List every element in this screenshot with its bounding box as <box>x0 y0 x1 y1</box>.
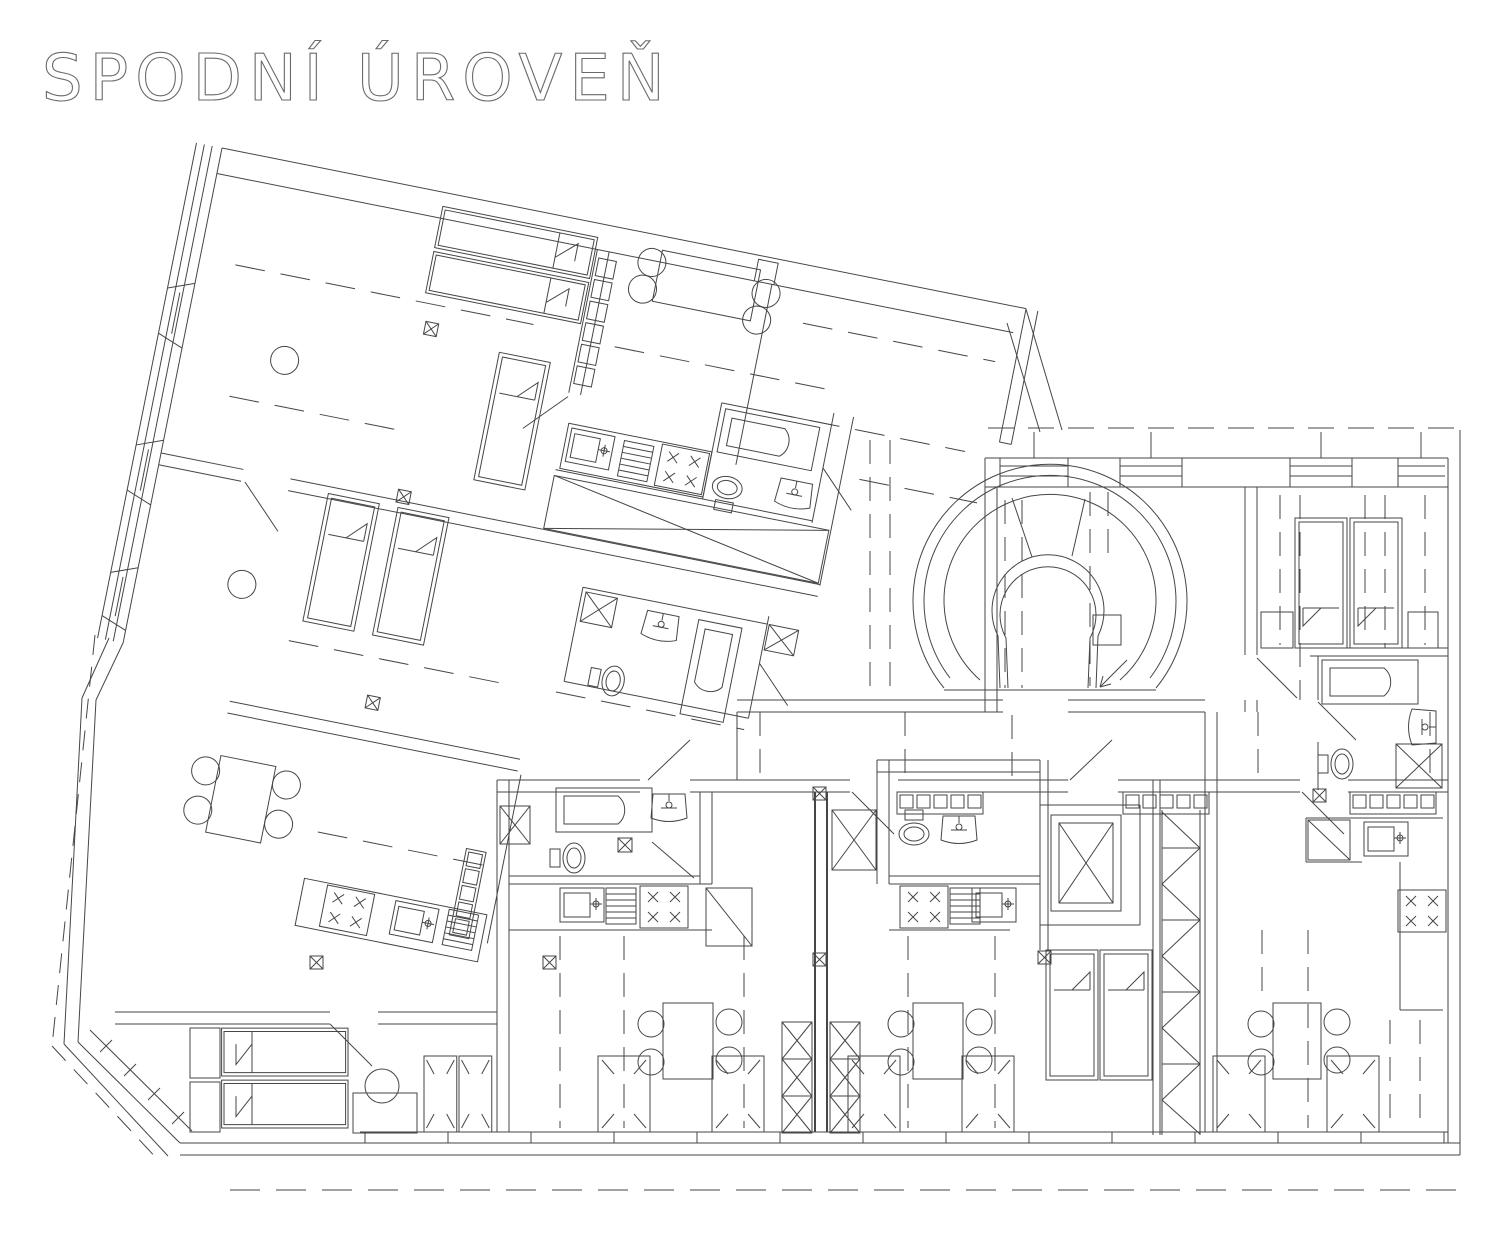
hatch-symbol <box>606 888 636 924</box>
tubh-symbol <box>556 788 652 832</box>
seat-symbol <box>962 1056 1014 1132</box>
bedv-symbol <box>1350 518 1402 648</box>
seat-symbol <box>712 1056 764 1132</box>
wc-symbol <box>708 474 744 514</box>
tubh-symbol <box>717 409 820 471</box>
basin-symbol <box>640 610 681 644</box>
stove-symbol <box>654 444 709 495</box>
bedv-symbol <box>373 507 449 645</box>
bedv-symbol <box>1046 950 1098 1080</box>
sink-symbol <box>972 888 1016 922</box>
stove-symbol <box>319 885 374 936</box>
bedh-symbol <box>222 1080 348 1128</box>
bedh-symbol <box>222 1028 348 1076</box>
hatch-symbol <box>617 441 653 482</box>
plan-drawing <box>50 143 1460 1190</box>
seat-symbol <box>848 1056 900 1132</box>
seat-symbol <box>1327 1056 1379 1132</box>
bedv-symbol <box>1295 518 1347 648</box>
plan-title: SPODNÍ ÚROVEŇ <box>42 40 672 116</box>
wc-symbol <box>1318 749 1353 779</box>
stove-symbol <box>1398 890 1446 932</box>
wc-symbol <box>550 843 585 873</box>
floorplan-svg: SPODNÍ ÚROVEŇ <box>0 0 1500 1245</box>
floorplan-page: SPODNÍ ÚROVEŇ <box>0 0 1500 1245</box>
stove-symbol <box>900 886 948 928</box>
tubh-symbol <box>680 620 742 723</box>
sink-symbol <box>1364 822 1408 856</box>
seat-symbol <box>1213 1056 1265 1132</box>
bedv-symbol <box>1100 950 1152 1080</box>
bedv-symbol <box>303 494 379 632</box>
seat-symbol <box>424 1056 457 1132</box>
bedv-symbol <box>474 352 550 490</box>
wc-symbol <box>899 810 929 845</box>
stove-symbol <box>640 886 688 928</box>
basin-symbol <box>941 816 977 844</box>
basin-symbol <box>1409 709 1437 745</box>
tubh-symbol <box>1322 660 1418 704</box>
sink-symbol <box>565 428 615 470</box>
sink-symbol <box>389 901 439 943</box>
basin-symbol <box>774 478 815 512</box>
basin-symbol <box>651 794 687 822</box>
seat-symbol <box>459 1056 492 1132</box>
right-wing <box>52 309 1460 1190</box>
sink-symbol <box>560 888 604 922</box>
